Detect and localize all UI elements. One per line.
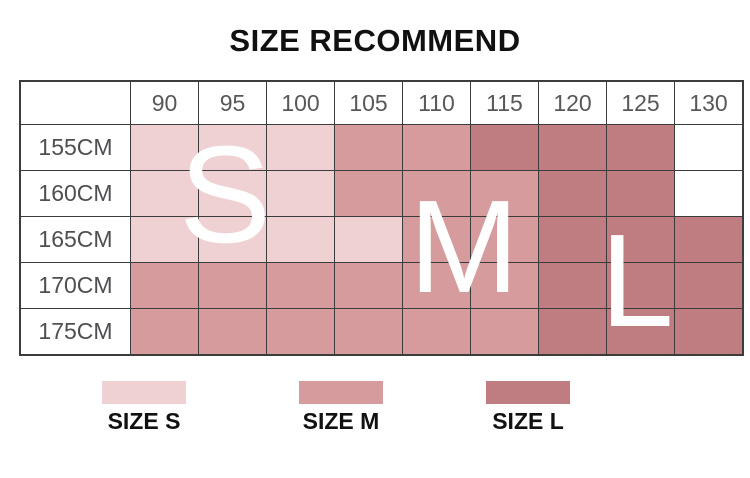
- legend-swatch-l: [486, 381, 570, 404]
- legend-item-size-s: SIZE S: [99, 381, 189, 435]
- table-row-170cm: 170CM: [20, 263, 743, 309]
- legend-label-s: SIZE S: [99, 408, 189, 435]
- legend-label-l: SIZE L: [483, 408, 573, 435]
- size-cell-170cm-125: [607, 263, 675, 309]
- row-header-155cm: 155CM: [20, 125, 131, 171]
- legend-item-size-l: SIZE L: [483, 381, 573, 435]
- size-cell-155cm-110: [403, 125, 471, 171]
- size-cell-165cm-125: [607, 217, 675, 263]
- size-cell-170cm-115: [471, 263, 539, 309]
- size-cell-160cm-90: [131, 171, 199, 217]
- row-header-170cm: 170CM: [20, 263, 131, 309]
- size-cell-175cm-100: [267, 309, 335, 356]
- column-header-110: 110: [403, 81, 471, 125]
- column-header-95: 95: [199, 81, 267, 125]
- column-header-115: 115: [471, 81, 539, 125]
- size-cell-170cm-95: [199, 263, 267, 309]
- size-cell-160cm-105: [335, 171, 403, 217]
- size-cell-170cm-120: [539, 263, 607, 309]
- legend-swatch-m: [299, 381, 383, 404]
- size-cell-160cm-115: [471, 171, 539, 217]
- size-cell-160cm-120: [539, 171, 607, 217]
- size-cell-175cm-95: [199, 309, 267, 356]
- size-cell-155cm-90: [131, 125, 199, 171]
- size-cell-170cm-110: [403, 263, 471, 309]
- size-cell-175cm-130: [675, 309, 744, 356]
- size-cell-165cm-115: [471, 217, 539, 263]
- size-cell-170cm-100: [267, 263, 335, 309]
- size-cell-165cm-95: [199, 217, 267, 263]
- row-header-160cm: 160CM: [20, 171, 131, 217]
- column-header-90: 90: [131, 81, 199, 125]
- size-cell-160cm-130: [675, 171, 744, 217]
- size-cell-155cm-115: [471, 125, 539, 171]
- legend-swatch-s: [102, 381, 186, 404]
- row-header-165cm: 165CM: [20, 217, 131, 263]
- table-row-165cm: 165CM: [20, 217, 743, 263]
- size-cell-175cm-125: [607, 309, 675, 356]
- row-header-175cm: 175CM: [20, 309, 131, 356]
- corner-cell: [20, 81, 131, 125]
- table-row-175cm: 175CM: [20, 309, 743, 356]
- size-cell-155cm-95: [199, 125, 267, 171]
- size-cell-175cm-90: [131, 309, 199, 356]
- size-recommend-chart: SIZE RECOMMEND 9095100105110115120125130…: [0, 0, 750, 478]
- size-cell-155cm-125: [607, 125, 675, 171]
- column-header-120: 120: [539, 81, 607, 125]
- size-cell-175cm-110: [403, 309, 471, 356]
- column-header-100: 100: [267, 81, 335, 125]
- size-cell-170cm-130: [675, 263, 744, 309]
- table-row-160cm: 160CM: [20, 171, 743, 217]
- size-cell-160cm-110: [403, 171, 471, 217]
- size-cell-155cm-130: [675, 125, 744, 171]
- size-cell-175cm-120: [539, 309, 607, 356]
- size-cell-165cm-90: [131, 217, 199, 263]
- table-row-155cm: 155CM: [20, 125, 743, 171]
- size-cell-165cm-110: [403, 217, 471, 263]
- column-header-105: 105: [335, 81, 403, 125]
- size-cell-165cm-130: [675, 217, 744, 263]
- size-table: 9095100105110115120125130155CM160CM165CM…: [19, 80, 744, 356]
- column-header-130: 130: [675, 81, 744, 125]
- size-cell-160cm-100: [267, 171, 335, 217]
- table-header-row: 9095100105110115120125130: [20, 81, 743, 125]
- size-cell-155cm-120: [539, 125, 607, 171]
- size-cell-175cm-105: [335, 309, 403, 356]
- size-cell-175cm-115: [471, 309, 539, 356]
- size-cell-165cm-120: [539, 217, 607, 263]
- size-cell-155cm-105: [335, 125, 403, 171]
- page-title: SIZE RECOMMEND: [0, 24, 750, 58]
- size-cell-155cm-100: [267, 125, 335, 171]
- size-cell-170cm-105: [335, 263, 403, 309]
- legend: SIZE S SIZE M SIZE L: [0, 381, 750, 441]
- size-cell-165cm-100: [267, 217, 335, 263]
- size-table-body: 9095100105110115120125130155CM160CM165CM…: [20, 81, 743, 355]
- size-cell-160cm-125: [607, 171, 675, 217]
- column-header-125: 125: [607, 81, 675, 125]
- size-cell-165cm-105: [335, 217, 403, 263]
- size-cell-170cm-90: [131, 263, 199, 309]
- legend-label-m: SIZE M: [296, 408, 386, 435]
- legend-item-size-m: SIZE M: [296, 381, 386, 435]
- size-cell-160cm-95: [199, 171, 267, 217]
